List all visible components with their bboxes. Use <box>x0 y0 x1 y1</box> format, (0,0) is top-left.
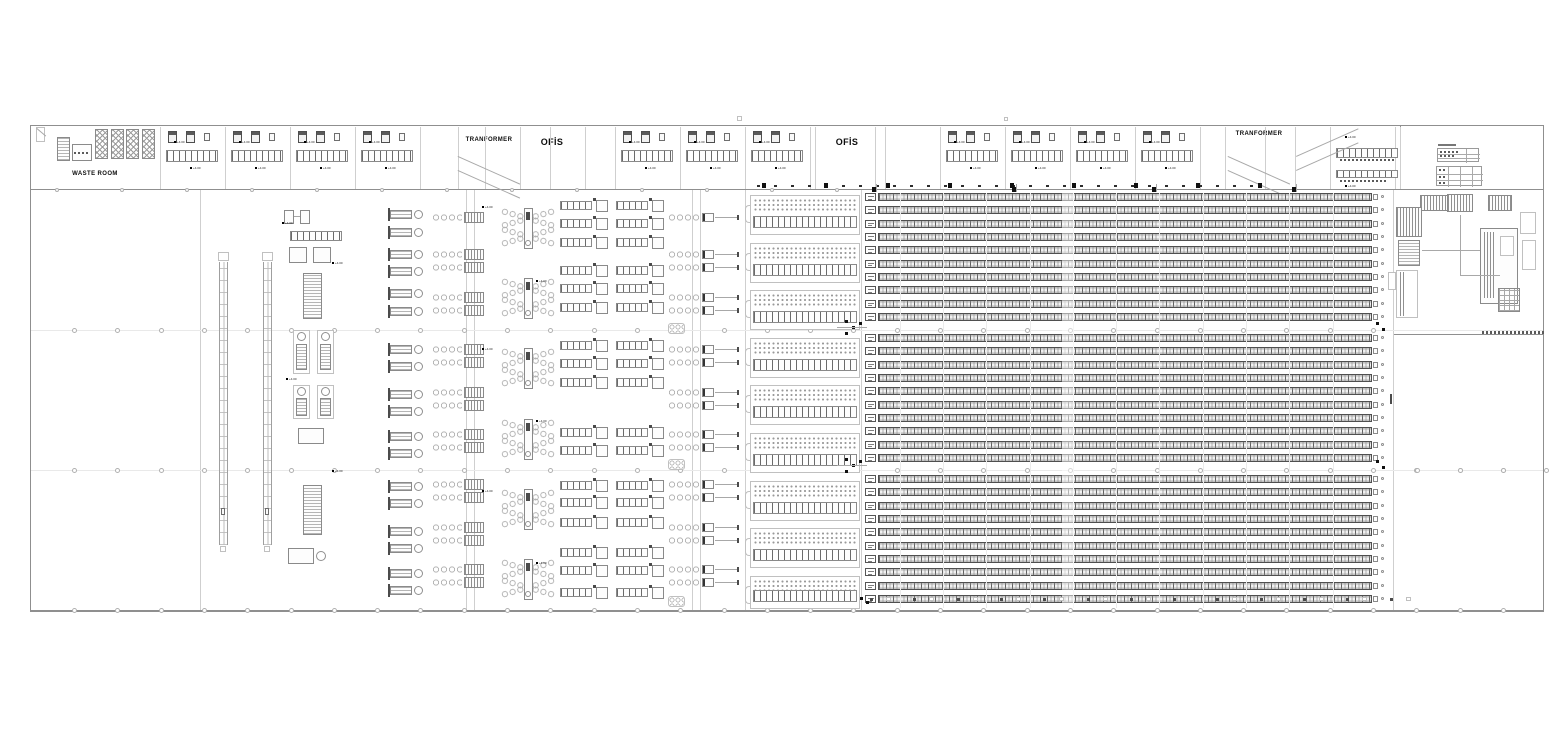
card-delivery <box>652 302 664 314</box>
conveyor-head <box>262 252 273 261</box>
elevation-mark: +4.00 <box>694 141 710 145</box>
drawframe-head <box>702 250 714 259</box>
spinning-row-dot <box>1381 222 1384 225</box>
grid-column-dot <box>678 608 683 613</box>
service-node <box>1382 466 1385 469</box>
card-machine <box>560 284 592 293</box>
elevation-mark: +4.00 <box>1149 141 1165 145</box>
card-machine <box>560 428 592 437</box>
utility-stack <box>1398 240 1420 266</box>
spinning-row-endcap <box>1373 274 1378 280</box>
spinning-row <box>878 555 1372 563</box>
end-frame-node <box>1000 598 1003 601</box>
card-delivery <box>652 265 664 277</box>
legend-table-1-text <box>1440 151 1458 153</box>
end-frame-node <box>1260 598 1263 601</box>
card-delivery <box>652 200 664 212</box>
spinning-row-endcap <box>1373 402 1378 408</box>
spinning-row-head <box>865 528 876 536</box>
card-machine <box>560 303 592 312</box>
prep-rack <box>303 273 322 319</box>
service-cluster-node <box>845 320 848 323</box>
spinning-row-dot <box>1381 208 1384 211</box>
legend-table-1-text <box>1440 155 1454 157</box>
spinning-row-endcap <box>1373 375 1378 381</box>
card-machine <box>616 284 648 293</box>
machine-unit-small <box>659 133 665 141</box>
elevation-mark: +4.00 <box>775 167 791 171</box>
card-flag <box>593 425 596 428</box>
grid-column-dot <box>1458 468 1463 473</box>
array-gridline <box>986 193 987 608</box>
prep-stand-body <box>296 344 307 370</box>
card-machine <box>616 566 648 575</box>
hall-gridline <box>200 190 201 610</box>
spinning-row-endcap <box>1373 476 1378 482</box>
spinning-row-head <box>865 401 876 409</box>
feeder-tick <box>388 305 390 318</box>
roving-hook <box>745 538 750 556</box>
room-divider <box>1005 127 1006 189</box>
card-delivery <box>652 283 664 295</box>
waste-container <box>111 129 124 159</box>
array-gridline <box>1333 193 1334 608</box>
feeder-can <box>414 544 423 553</box>
spinning-row-dot <box>1381 477 1384 480</box>
roving-drafting-rail <box>753 216 857 228</box>
grid-column-dot <box>505 328 510 333</box>
grid-column-dot <box>115 608 120 613</box>
prep-bobbin <box>321 332 330 341</box>
grid-column-dot <box>375 328 380 333</box>
machine-unit-small <box>204 133 210 141</box>
roving-bobbin-rail <box>753 531 857 545</box>
room-divider <box>1225 127 1226 189</box>
room-machine-bar <box>1141 150 1193 162</box>
end-frame-node <box>1390 598 1393 601</box>
elevation-mark: +4.00 <box>1019 141 1035 145</box>
card-flag <box>649 356 652 359</box>
end-frame-node <box>1087 598 1090 601</box>
grid-column-dot <box>1371 468 1376 473</box>
prep-bobbin <box>297 332 306 341</box>
service-node <box>1376 322 1379 325</box>
can-chain <box>432 523 462 532</box>
card-machine <box>560 201 592 210</box>
drawframe-chain <box>668 345 700 354</box>
spinning-row-endcap <box>1373 261 1378 267</box>
room-divider <box>615 127 616 189</box>
can-chain <box>432 480 462 489</box>
card-machine <box>616 518 648 527</box>
drawframe-chain <box>668 578 700 587</box>
drawframe-head <box>702 293 714 302</box>
card-flag <box>649 216 652 219</box>
conveyor-drive <box>221 508 225 515</box>
drawframe-head <box>702 480 714 489</box>
roving-hook <box>745 491 750 509</box>
grid-column-dot <box>245 608 250 613</box>
service-node <box>860 597 863 600</box>
roving-bobbin-rail <box>753 341 857 355</box>
elevation-mark: +4.00 <box>1084 141 1100 145</box>
grid-column-dot <box>1501 468 1506 473</box>
spinning-row-head <box>865 582 876 590</box>
spinning-row-endcap <box>1373 596 1378 602</box>
drawframe-tick <box>737 403 739 408</box>
card-delivery <box>652 517 664 529</box>
spinning-row-dot <box>1381 262 1384 265</box>
grid-column-dot <box>722 468 727 473</box>
feeder-can <box>414 432 423 441</box>
card-flag <box>593 545 596 548</box>
room-divider <box>355 127 356 189</box>
spinning-row <box>878 582 1372 590</box>
blender-box <box>464 387 484 398</box>
roving-drafting-rail <box>753 264 857 276</box>
elevation-mark: +4.00 <box>482 206 498 210</box>
grid-column-dot <box>635 608 640 613</box>
drawframe-tail <box>715 569 737 570</box>
feeder-tick <box>388 388 390 401</box>
machine-unit-small <box>334 133 340 141</box>
wall-top <box>30 125 1544 126</box>
spinning-row <box>878 233 1372 241</box>
blender-box <box>464 522 484 533</box>
can-chain <box>432 536 462 545</box>
service-cluster-node <box>859 460 862 463</box>
drawframe-tail <box>715 405 737 406</box>
drawframe-tail <box>715 362 737 363</box>
card-flag <box>649 375 652 378</box>
office-left-label: OFİS <box>521 137 583 147</box>
roving-drafting-rail <box>753 590 857 602</box>
machine-unit-small <box>984 133 990 141</box>
feeder-tick <box>388 497 390 510</box>
spinning-row-dot <box>1381 336 1384 339</box>
drawframe-tail <box>715 392 737 393</box>
dimension-tick <box>1390 394 1392 404</box>
drawframe-head <box>702 565 714 574</box>
card-machine <box>616 481 648 490</box>
feeder-can <box>414 228 423 237</box>
grid-column-dot <box>1111 608 1116 613</box>
wall-utility-bottom <box>1393 334 1544 335</box>
feeder-can <box>414 527 423 536</box>
hall-gridline <box>700 190 701 610</box>
can-chain <box>432 493 462 502</box>
feeder-can <box>414 307 423 316</box>
feeder-tick <box>388 542 390 555</box>
feeder-machine <box>390 432 412 441</box>
spinning-row-endcap <box>1373 234 1378 240</box>
drawframe-tail <box>715 447 737 448</box>
feeder-tick <box>388 226 390 239</box>
card-delivery <box>596 340 608 352</box>
feeder-tick <box>388 360 390 373</box>
creel-center-dark <box>526 282 530 290</box>
elevation-mark: +4.00 <box>282 222 298 226</box>
spinning-row-endcap <box>1373 362 1378 368</box>
service-node <box>1382 328 1385 331</box>
drawframe-chain <box>668 213 700 222</box>
roving-drafting-rail <box>753 502 857 514</box>
room-divider <box>1400 127 1401 189</box>
spinning-row <box>878 347 1372 355</box>
card-delivery <box>596 497 608 509</box>
grid-column-dot <box>445 188 449 192</box>
card-machine <box>616 428 648 437</box>
card-flag <box>593 495 596 498</box>
spinning-row-endcap <box>1373 335 1378 341</box>
room-machine-bar <box>296 150 348 162</box>
prep-wheel <box>316 551 326 561</box>
utility-plant-fins <box>1484 232 1496 298</box>
feeder-can <box>414 586 423 595</box>
end-frame-mark <box>1406 597 1411 601</box>
drawframe-tick <box>737 295 739 300</box>
factory-floor-plan: WASTE ROOM TRANFORMER OFİS OFİS TRANFORM… <box>0 0 1567 738</box>
array-feed-drop <box>1156 184 1157 192</box>
waste-bin-grate <box>74 152 90 154</box>
drawframe-head <box>702 430 714 439</box>
feeder-machine <box>390 362 412 371</box>
feeder-machine <box>390 390 412 399</box>
feeder-tick <box>388 447 390 460</box>
drawframe-tail <box>715 434 737 435</box>
feeder-can <box>414 362 423 371</box>
feeder-machine <box>390 586 412 595</box>
grid-column-dot <box>1371 608 1376 613</box>
feeder-tick <box>388 525 390 538</box>
can-chain <box>432 401 462 410</box>
spinning-row-head <box>865 414 876 422</box>
grid-column-dot <box>592 468 597 473</box>
card-machine <box>616 303 648 312</box>
grid-column-dot <box>1415 468 1420 473</box>
spinning-row <box>878 441 1372 449</box>
service-node <box>1258 183 1262 188</box>
grid-column-dot <box>462 608 467 613</box>
card-delivery <box>596 265 608 277</box>
utility-pipe <box>1460 275 1500 276</box>
service-cluster-line <box>837 465 867 466</box>
grid-column-dot <box>202 328 207 333</box>
feeder-machine <box>390 544 412 553</box>
waste-room-label: WASTE ROOM <box>58 171 132 177</box>
room-divider <box>1200 127 1201 189</box>
room-divider <box>680 127 681 189</box>
spinning-row-head <box>865 502 876 510</box>
feeder-machine <box>390 449 412 458</box>
grid-column-dot <box>1544 468 1549 473</box>
roving-bobbin-rail <box>753 246 857 260</box>
drawframe-head <box>702 401 714 410</box>
grid-column-dot <box>575 188 579 192</box>
spinning-row-head <box>865 488 876 496</box>
spinning-row-head <box>865 475 876 483</box>
grid-column-dot <box>418 468 423 473</box>
card-delivery <box>652 340 664 352</box>
grid-column-dot <box>1241 608 1246 613</box>
feeder-machine <box>390 228 412 237</box>
feeder-can <box>414 407 423 416</box>
card-flag <box>649 443 652 446</box>
grid-column-dot <box>375 468 380 473</box>
spinning-row-head <box>865 246 876 254</box>
drawframe-tail <box>715 497 737 498</box>
creel-wheel <box>525 521 531 527</box>
spinning-row-endcap <box>1373 583 1378 589</box>
room-divider <box>745 127 746 189</box>
drawframe-head <box>702 306 714 315</box>
spinning-row-dot <box>1381 288 1384 291</box>
spinning-row-endcap <box>1373 247 1378 253</box>
card-delivery <box>596 445 608 457</box>
spinning-row-head <box>865 555 876 563</box>
card-flag <box>593 585 596 588</box>
card-flag <box>593 263 596 266</box>
grid-column-dot <box>1458 608 1463 613</box>
spinning-row-dot <box>1381 315 1384 318</box>
wall-bottom <box>30 610 1544 612</box>
spinning-row-endcap <box>1373 287 1378 293</box>
roving-bobbin-rail <box>753 436 857 450</box>
spinning-row <box>878 246 1372 254</box>
card-flag <box>593 216 596 219</box>
grid-column-dot <box>289 608 294 613</box>
grid-column-dot <box>462 468 467 473</box>
card-machine <box>616 341 648 350</box>
grid-column-dot <box>1328 608 1333 613</box>
spinning-row-dot <box>1381 443 1384 446</box>
room-divider <box>885 127 886 189</box>
prep-machine <box>300 210 310 224</box>
card-flag <box>649 263 652 266</box>
drawframe-head <box>702 263 714 272</box>
legend-table-2-vline <box>1460 167 1461 187</box>
grid-column-dot <box>835 188 839 192</box>
spinning-row-dot <box>1381 349 1384 352</box>
card-delivery <box>596 358 608 370</box>
room-machine-bar <box>231 150 283 162</box>
spinning-row-dot <box>1381 376 1384 379</box>
end-frame-mark <box>1319 597 1324 601</box>
spinning-row-dot <box>1381 490 1384 493</box>
spinning-row-endcap <box>1373 194 1378 200</box>
spinning-row-dot <box>1381 389 1384 392</box>
spinning-row <box>878 260 1372 268</box>
prep-link <box>294 216 300 217</box>
feeder-tick <box>388 208 390 221</box>
spinning-row-head <box>865 233 876 241</box>
elevation-mark: +4.00 <box>385 167 401 171</box>
prep-bobbin <box>297 387 306 396</box>
feeder-can <box>414 267 423 276</box>
array-gridline <box>1246 193 1247 608</box>
prep-machine <box>288 548 314 564</box>
blender-box <box>464 442 484 453</box>
spinning-row-dot <box>1381 504 1384 507</box>
card-machine <box>560 219 592 228</box>
card-delivery <box>652 445 664 457</box>
array-gridline <box>1159 193 1160 608</box>
can-chain <box>432 443 462 452</box>
card-flag <box>649 425 652 428</box>
array-gridline <box>1203 193 1204 608</box>
card-machine <box>560 481 592 490</box>
wall-right <box>1543 125 1544 611</box>
spinning-row <box>878 300 1372 308</box>
elevation-mark: +4.00 <box>286 378 302 382</box>
card-machine <box>616 201 648 210</box>
feeder-tick <box>388 343 390 356</box>
drawframe-tick <box>737 265 739 270</box>
roving-hook <box>745 586 750 604</box>
grid-column-dot <box>315 188 319 192</box>
drawframe-tail <box>715 540 737 541</box>
roving-drafting-rail <box>753 311 857 323</box>
drawframe-chain <box>668 263 700 272</box>
drawframe-tick <box>737 215 739 220</box>
array-feed-drop <box>1296 184 1297 192</box>
spinning-row-dot <box>1381 456 1384 459</box>
grid-column-dot <box>770 188 774 192</box>
prep-stand-body <box>320 344 331 370</box>
end-frame-node <box>1303 598 1306 601</box>
wall-left <box>30 125 31 611</box>
card-flag <box>593 338 596 341</box>
spinning-row-dot <box>1381 235 1384 238</box>
spinning-row-head <box>865 374 876 382</box>
end-frame-mark <box>1362 597 1367 601</box>
creel-center-dark <box>526 352 530 360</box>
grid-column-dot <box>548 608 553 613</box>
card-machine <box>560 378 592 387</box>
card-flag <box>649 478 652 481</box>
grid-column-dot <box>981 608 986 613</box>
card-delivery <box>596 427 608 439</box>
service-cluster-node <box>845 332 848 335</box>
grid-column-dot <box>640 188 644 192</box>
spinning-row-endcap <box>1373 207 1378 213</box>
symbol-box <box>668 323 685 334</box>
drawframe-tick <box>737 525 739 530</box>
feeder-machine <box>390 250 412 259</box>
feeder-can <box>414 449 423 458</box>
array-gridline <box>900 193 901 608</box>
drawframe-chain <box>668 430 700 439</box>
conveyor-head <box>218 252 229 261</box>
spinning-row-dot <box>1381 570 1384 573</box>
roving-drafting-rail <box>753 359 857 371</box>
spinning-row-head <box>865 542 876 550</box>
room-divider <box>875 127 876 189</box>
room-machine-bar <box>946 150 998 162</box>
drawframe-chain <box>668 480 700 489</box>
grid-column-dot <box>1068 608 1073 613</box>
drawframe-chain <box>668 358 700 367</box>
spinning-row-head <box>865 313 876 321</box>
drawframe-tick <box>737 495 739 500</box>
conveyor-end <box>220 546 226 552</box>
blender-box <box>464 305 484 316</box>
roof-mark <box>1004 117 1008 121</box>
card-machine <box>560 588 592 597</box>
utility-manifold <box>1488 195 1512 211</box>
spinning-row <box>878 273 1372 281</box>
card-flag <box>649 235 652 238</box>
